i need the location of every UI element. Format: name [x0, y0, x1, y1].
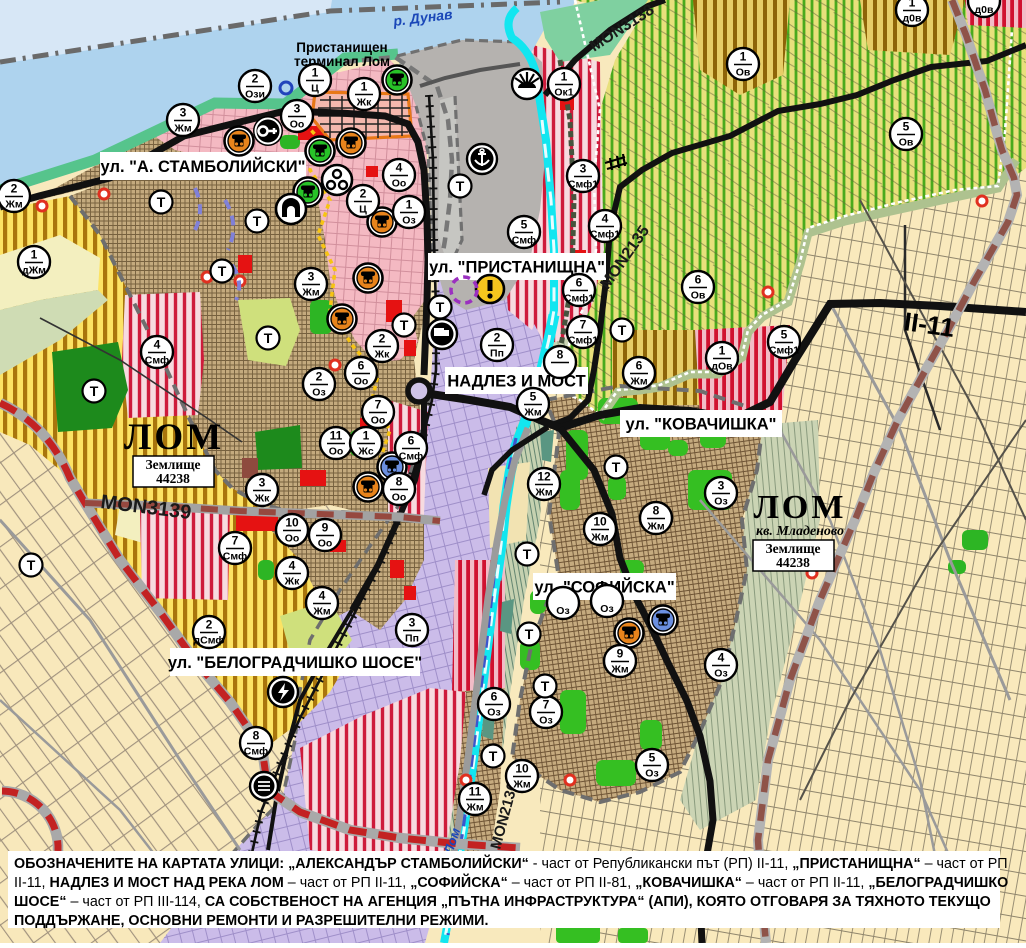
svg-text:дОв: дОв [711, 361, 733, 373]
svg-text:3: 3 [294, 102, 301, 116]
svg-text:Т: Т [253, 213, 262, 229]
svg-text:9: 9 [617, 647, 624, 661]
svg-text:3: 3 [308, 270, 315, 284]
svg-text:44238: 44238 [776, 555, 810, 570]
svg-text:2: 2 [494, 331, 501, 345]
svg-text:1: 1 [740, 50, 747, 64]
svg-text:11: 11 [330, 429, 343, 443]
svg-text:ПОДДЪРЖАНЕ, ОСНОВНИ РЕМОНТИ И: ПОДДЪРЖАНЕ, ОСНОВНИ РЕМОНТИ И РАЗРЕШИТЕЛ… [14, 913, 488, 929]
svg-text:Жм: Жм [301, 287, 319, 299]
svg-text:Жм: Жм [465, 802, 483, 814]
svg-text:8: 8 [653, 504, 660, 518]
svg-text:8: 8 [396, 475, 403, 489]
svg-text:5: 5 [530, 390, 537, 404]
svg-text:Т: Т [541, 678, 550, 694]
svg-text:1: 1 [406, 198, 413, 212]
svg-text:8: 8 [253, 729, 260, 743]
svg-text:7: 7 [232, 534, 239, 548]
svg-text:4: 4 [289, 559, 296, 573]
svg-text:Ози: Ози [245, 89, 265, 101]
svg-text:Оз: Оз [539, 715, 552, 727]
svg-text:д0в: д0в [975, 4, 995, 16]
svg-text:2: 2 [360, 187, 367, 201]
svg-text:Оо: Оо [371, 415, 386, 427]
svg-text:Оз: Оз [312, 387, 325, 399]
svg-text:ОБОЗНАЧЕНИТЕ НА КАРТАТА УЛИЦИ:: ОБОЗНАЧЕНИТЕ НА КАРТАТА УЛИЦИ: „АЛЕКСАНД… [14, 854, 1008, 872]
svg-text:Т: Т [456, 178, 465, 194]
svg-text:Жк: Жк [356, 97, 372, 109]
svg-text:4: 4 [396, 161, 403, 175]
svg-text:Оо: Оо [318, 538, 333, 550]
svg-text:Т: Т [618, 322, 627, 338]
svg-text:Ов: Ов [691, 290, 706, 302]
svg-text:10: 10 [593, 515, 607, 529]
svg-text:Жм: Жм [629, 376, 647, 388]
svg-text:2: 2 [379, 332, 386, 346]
svg-text:2: 2 [206, 618, 213, 632]
svg-text:4: 4 [718, 651, 725, 665]
svg-text:1: 1 [561, 70, 568, 84]
svg-text:д0в: д0в [903, 13, 923, 25]
svg-text:4: 4 [154, 338, 161, 352]
svg-text:12: 12 [537, 470, 551, 484]
svg-text:Смф: Смф [244, 746, 268, 758]
svg-text:Смф: Смф [145, 355, 169, 367]
svg-text:8: 8 [557, 348, 564, 362]
svg-text:Пп: Пп [490, 348, 504, 360]
svg-text:Т: Т [90, 383, 99, 399]
svg-text:3: 3 [409, 616, 416, 630]
svg-text:5: 5 [903, 120, 910, 134]
svg-text:Жк: Жк [284, 576, 300, 588]
svg-text:Смф: Смф [223, 551, 247, 563]
svg-text:Т: Т [612, 459, 621, 475]
svg-text:Оо: Оо [354, 376, 369, 388]
svg-text:2: 2 [252, 72, 259, 86]
svg-text:6: 6 [695, 273, 702, 287]
svg-text:Жм: Жм [173, 123, 191, 135]
svg-text:Жм: Жм [646, 521, 664, 533]
svg-text:ЛОМ: ЛОМ [124, 417, 224, 458]
svg-text:3: 3 [259, 476, 266, 490]
svg-text:1: 1 [361, 80, 368, 94]
svg-text:Жм: Жм [590, 532, 608, 544]
svg-text:1: 1 [719, 344, 726, 358]
svg-text:ШОСЕ“ – част от РП III-114, СА: ШОСЕ“ – част от РП III-114, СА СОБСТВЕНО… [14, 894, 991, 910]
svg-text:ул. "КОВАЧИШКА": ул. "КОВАЧИШКА" [626, 415, 777, 433]
svg-text:3: 3 [580, 162, 587, 176]
svg-text:Т: Т [525, 626, 534, 642]
svg-text:Оз: Оз [600, 603, 613, 615]
svg-text:Смф1: Смф1 [769, 345, 799, 357]
svg-text:10: 10 [515, 762, 529, 776]
svg-text:Смф: Смф [399, 451, 423, 463]
svg-text:Смф1: Смф1 [568, 335, 598, 347]
svg-text:Жк: Жк [254, 493, 270, 505]
svg-text:Пп: Пп [405, 633, 419, 645]
svg-text:Т: Т [27, 557, 36, 573]
svg-text:1: 1 [31, 248, 38, 262]
svg-text:4: 4 [602, 212, 609, 226]
svg-text:Оо: Оо [290, 119, 305, 131]
svg-text:II-11, НАДЛЕЗ И МОСТ НАД РЕКА: II-11, НАДЛЕЗ И МОСТ НАД РЕКА ЛОМ – част… [14, 873, 1008, 891]
svg-text:Землище: Землище [145, 457, 200, 472]
svg-text:Оз: Оз [645, 768, 658, 780]
svg-text:Жм: Жм [534, 487, 552, 499]
svg-text:Смф1: Смф1 [590, 229, 620, 241]
svg-text:Ов: Ов [899, 137, 914, 149]
svg-text:ул. "БЕЛОГРАДЧИШКО ШОСЕ": ул. "БЕЛОГРАДЧИШКО ШОСЕ" [168, 654, 422, 672]
svg-text:Т: Т [400, 317, 409, 333]
svg-text:Смф: Смф [512, 235, 536, 247]
svg-text:4: 4 [319, 589, 326, 603]
svg-text:Оз: Оз [402, 215, 415, 227]
svg-text:Смф1: Смф1 [564, 293, 594, 305]
svg-text:дСмф: дСмф [193, 635, 224, 647]
svg-text:Жк: Жк [374, 349, 390, 361]
svg-text:Т: Т [523, 546, 532, 562]
svg-text:10: 10 [285, 516, 299, 530]
svg-text:Жм: Жм [312, 606, 330, 618]
svg-text:11: 11 [469, 785, 482, 799]
svg-text:Землище: Землище [765, 541, 820, 556]
svg-text:3: 3 [718, 479, 725, 493]
svg-text:Жм: Жм [512, 779, 530, 791]
svg-text:6: 6 [491, 690, 498, 704]
svg-text:дЖм: дЖм [22, 265, 46, 277]
svg-text:Ц: Ц [311, 83, 319, 95]
svg-text:6: 6 [636, 359, 643, 373]
svg-text:Жм: Жм [610, 664, 628, 676]
svg-text:Оз: Оз [714, 496, 727, 508]
svg-text:7: 7 [580, 318, 587, 332]
svg-text:Оз: Оз [556, 605, 569, 617]
svg-text:6: 6 [576, 276, 583, 290]
svg-text:7: 7 [375, 398, 382, 412]
svg-text:6: 6 [358, 359, 365, 373]
svg-text:2: 2 [11, 182, 18, 196]
svg-text:Жс: Жс [357, 446, 373, 458]
svg-text:3: 3 [180, 106, 187, 120]
svg-text:Ок1: Ок1 [554, 87, 573, 99]
svg-text:Смф1: Смф1 [568, 179, 598, 191]
svg-text:Ов: Ов [736, 67, 751, 79]
svg-text:Оо: Оо [392, 178, 407, 190]
svg-text:Т: Т [264, 330, 273, 346]
svg-text:Жм: Жм [523, 407, 541, 419]
svg-text:Т: Т [218, 263, 227, 279]
svg-text:Т: Т [436, 299, 445, 315]
svg-text:Оо: Оо [329, 446, 344, 458]
svg-text:ЛОМ: ЛОМ [754, 489, 847, 526]
svg-text:1: 1 [312, 66, 319, 80]
svg-text:Ц: Ц [359, 204, 367, 216]
svg-text:Т: Т [157, 194, 166, 210]
svg-text:ул. "А. СТАМБОЛИЙСКИ": ул. "А. СТАМБОЛИЙСКИ" [101, 157, 306, 176]
svg-text:Оз: Оз [714, 668, 727, 680]
svg-text:2: 2 [316, 370, 323, 384]
svg-text:5: 5 [649, 751, 656, 765]
svg-text:7: 7 [543, 698, 550, 712]
svg-text:Оо: Оо [285, 533, 300, 545]
svg-text:1: 1 [363, 429, 370, 443]
svg-text:5: 5 [521, 218, 528, 232]
svg-text:5: 5 [781, 328, 788, 342]
svg-text:Пристанищен: Пристанищен [296, 40, 387, 55]
svg-text:Оо: Оо [392, 492, 407, 504]
svg-text:44238: 44238 [156, 471, 190, 486]
svg-text:Жм: Жм [4, 199, 22, 211]
svg-text:Т: Т [489, 748, 498, 764]
svg-text:6: 6 [408, 434, 415, 448]
svg-text:кв. Младеново: кв. Младеново [756, 524, 844, 539]
svg-text:9: 9 [322, 521, 329, 535]
svg-text:1: 1 [909, 0, 916, 10]
svg-text:Оз: Оз [487, 707, 500, 719]
